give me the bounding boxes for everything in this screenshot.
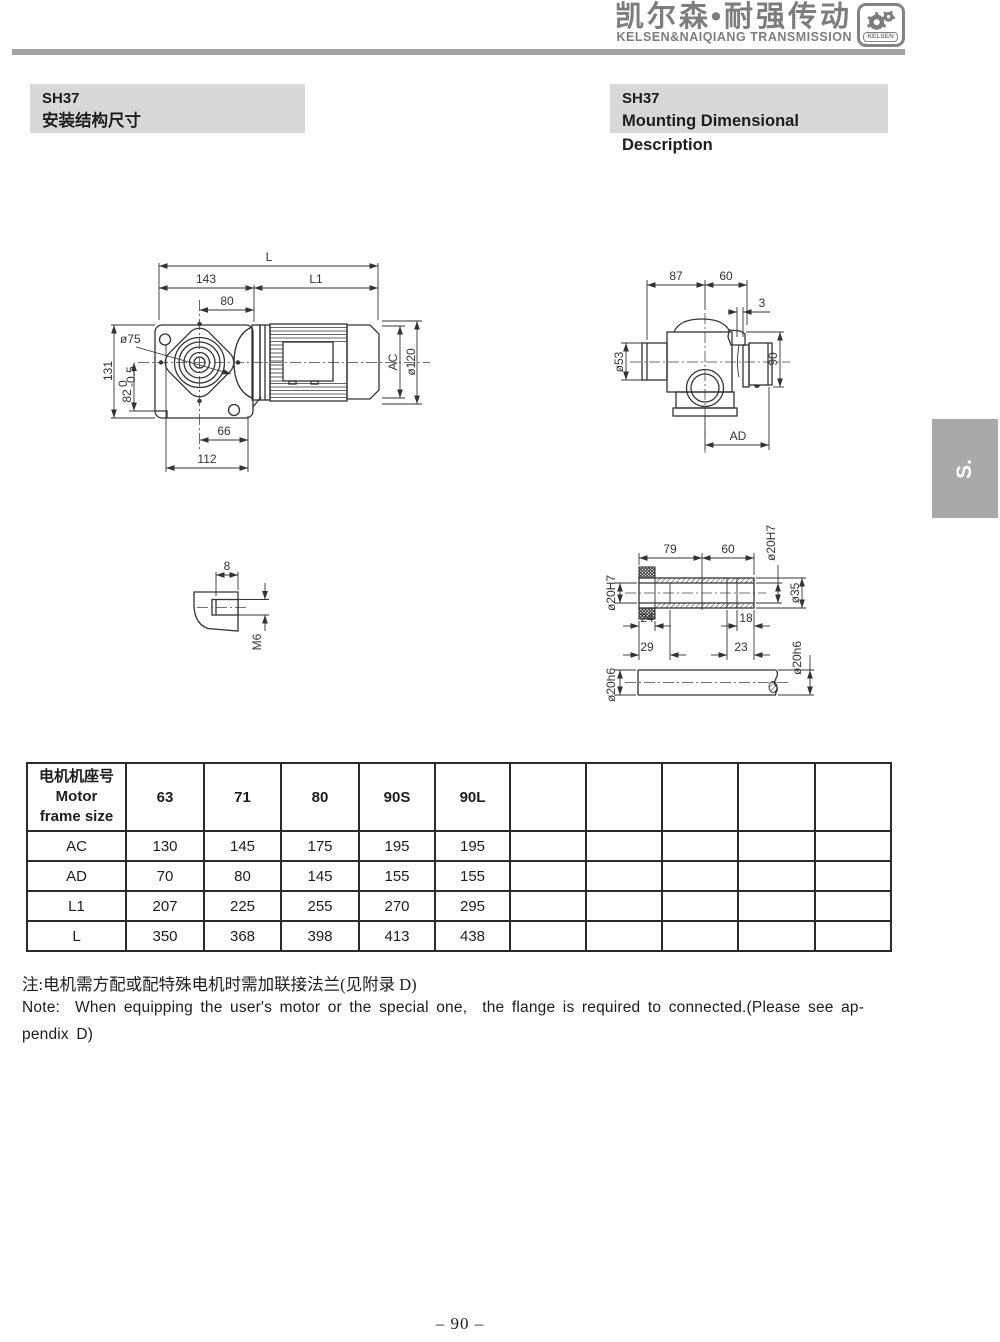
table-cell (815, 891, 891, 921)
model-code: SH37 (42, 89, 295, 109)
housing-outline (642, 319, 772, 416)
table-cell (586, 921, 662, 951)
table-row-label: L1 (27, 891, 126, 921)
catalog-page: 凯尔森•耐强传动 KELSEN&NAIQIANG TRANSMISSION KE… (0, 0, 1000, 1342)
dim-24: 24 (640, 611, 654, 625)
brand-logo: KELSEN (857, 3, 905, 47)
table-cell (510, 831, 586, 861)
dim-112: 112 (197, 452, 216, 466)
dim-dia120: ø120 (404, 348, 418, 376)
model-code: SH37 (622, 89, 878, 109)
section-tab-label: S. (953, 459, 977, 479)
dim-23: 23 (734, 640, 748, 654)
title-block-cn: SH37 安装结构尺寸 (30, 84, 305, 133)
dim-dia20H7-top: ø20H7 (764, 525, 778, 561)
dim-3: 3 (759, 296, 766, 310)
table-cell (510, 861, 586, 891)
table-cell (738, 861, 815, 891)
table-cell: 413 (359, 921, 435, 951)
dim-dia53: ø53 (612, 351, 626, 372)
header-divider (12, 49, 905, 55)
brand-name-en: KELSEN&NAIQIANG TRANSMISSION (500, 30, 852, 44)
table-cell: 195 (359, 831, 435, 861)
table-cell (815, 831, 891, 861)
dim-dia20h6-right: ø20h6 (790, 641, 804, 675)
drawing-gearmotor-view: L 143 L1 80 ø75 131 82 0 -0.5 66 (100, 240, 450, 485)
table-cell: 155 (435, 861, 510, 891)
note-en-line1: Note: When equipping the user's motor or… (22, 999, 896, 1017)
table-cell: 255 (281, 891, 359, 921)
table-row: AD7080145155155 (27, 861, 891, 891)
drawing-tap-detail: 8 M6 (150, 530, 290, 680)
table-cell (738, 891, 815, 921)
table-cell (662, 921, 738, 951)
dim-143: 143 (196, 272, 216, 286)
table-cell: 155 (359, 861, 435, 891)
table-cell: 398 (281, 921, 359, 951)
table-cell: 368 (204, 921, 281, 951)
table-cell: 350 (126, 921, 204, 951)
brand-name-cn: 凯尔森•耐强传动 (500, 2, 852, 32)
dimension-table: 电机机座号Motorframe size63718090S90LAC130145… (26, 762, 892, 952)
table-cell (662, 831, 738, 861)
table-cell (815, 921, 891, 951)
dimensions: 87 60 3 ø53 90 AD (612, 269, 784, 450)
dim-dia35: ø35 (788, 582, 802, 603)
dim-AD: AD (730, 429, 747, 443)
note-cn: 注:电机需方配或配特殊电机时需加联接法兰(见附录 D) (22, 971, 902, 995)
drawing-gearbox-end-view: 87 60 3 ø53 90 AD (590, 255, 820, 470)
dim-AC: AC (386, 353, 400, 370)
table-cell (510, 921, 586, 951)
table-column-header (510, 763, 586, 831)
motor-rear-cap (347, 325, 379, 399)
note-en-line2: pendix D) (22, 1026, 896, 1044)
table-cell: 295 (435, 891, 510, 921)
table-cell: 438 (435, 921, 510, 951)
title-subtitle-cn: 安装结构尺寸 (42, 109, 295, 133)
table-row: AC130145175195195 (27, 831, 891, 861)
dim-131: 131 (101, 361, 115, 381)
table-cell (586, 891, 662, 921)
table-cell: 270 (359, 891, 435, 921)
dimensions: 79 60 ø20H7 ø35 ø20H7 24 18 (604, 525, 814, 702)
dim-66: 66 (217, 424, 231, 438)
gearbox-outline (155, 322, 261, 418)
table-cell: 145 (204, 831, 281, 861)
table-cell: 145 (281, 861, 359, 891)
table-cell (662, 891, 738, 921)
dim-dia20H7-left: ø20H7 (604, 575, 618, 611)
table-column-header: 71 (204, 763, 281, 831)
dim-L1: L1 (309, 272, 323, 286)
table-cell (738, 921, 815, 951)
gear-icon (860, 7, 902, 33)
dim-dia75: ø75 (120, 332, 141, 346)
table-column-header: 90S (359, 763, 435, 831)
table-cell: 195 (435, 831, 510, 861)
table-column-header (815, 763, 891, 831)
table-column-header: 63 (126, 763, 204, 831)
dim-79: 79 (663, 542, 677, 556)
svg-text:82: 82 (120, 389, 134, 403)
table-cell (662, 861, 738, 891)
table-column-header (662, 763, 738, 831)
section-tab: S. (932, 419, 998, 518)
table-cell: 80 (204, 861, 281, 891)
svg-text:-0.5: -0.5 (124, 366, 138, 387)
table-cell (586, 861, 662, 891)
logo-wordmark: KELSEN (863, 32, 898, 42)
table-cell: 70 (126, 861, 204, 891)
dim-8: 8 (224, 559, 231, 573)
table-column-header (586, 763, 662, 831)
table-row: L350368398413438 (27, 921, 891, 951)
table-cell (586, 831, 662, 861)
table-column-header (738, 763, 815, 831)
table-row-label: L (27, 921, 126, 951)
dim-60: 60 (719, 269, 733, 283)
table-cell: 175 (281, 831, 359, 861)
table-row: L1207225255270295 (27, 891, 891, 921)
table-row-label: AC (27, 831, 126, 861)
page-number: – 90 – (0, 1314, 920, 1334)
drawing-shaft-detail: 79 60 ø20H7 ø35 ø20H7 24 18 (580, 515, 840, 715)
table-cell: 207 (126, 891, 204, 921)
table-column-header: 90L (435, 763, 510, 831)
title-block-en: SH37 Mounting Dimensional Description (610, 84, 888, 133)
dim-18: 18 (739, 611, 753, 625)
table-header-motor-frame-size: 电机机座号Motorframe size (27, 763, 126, 831)
table-cell (815, 861, 891, 891)
dim-dia20h6-left: ø20h6 (604, 668, 618, 702)
table-cell: 225 (204, 891, 281, 921)
dim-87: 87 (669, 269, 683, 283)
title-subtitle-en: Mounting Dimensional Description (622, 109, 878, 157)
dim-80: 80 (220, 294, 234, 308)
table-row-label: AD (27, 861, 126, 891)
dim-60: 60 (721, 542, 735, 556)
dim-29: 29 (640, 640, 654, 654)
table-cell: 130 (126, 831, 204, 861)
dim-90: 90 (766, 352, 780, 366)
table-column-header: 80 (281, 763, 359, 831)
dim-L: L (266, 250, 273, 264)
terminal-box (283, 342, 333, 381)
table-cell (510, 891, 586, 921)
seal-ring-top (639, 567, 655, 578)
dim-M6: M6 (250, 633, 264, 650)
table-cell (738, 831, 815, 861)
dimensions: L 143 L1 80 ø75 131 82 0 -0.5 66 (101, 250, 422, 472)
dim-82-tolerance: 82 0 -0.5 (116, 366, 138, 403)
